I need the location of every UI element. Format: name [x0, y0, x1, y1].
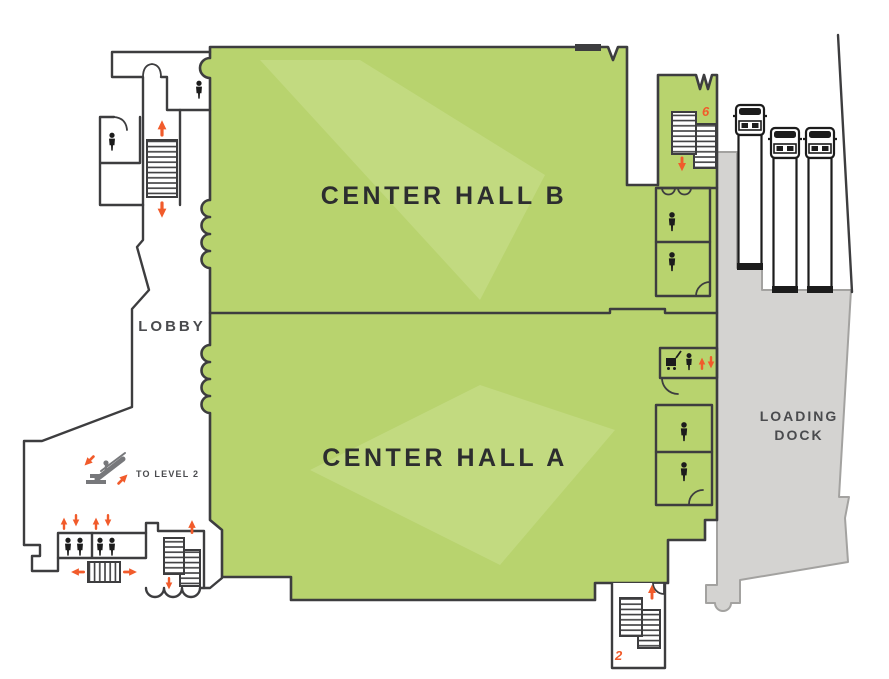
loading-dock-label-line1: LOADING: [760, 408, 839, 424]
left-arrow-icon: [71, 568, 84, 575]
elevator-person-icon: [77, 538, 83, 556]
truck-icon: [733, 105, 767, 270]
down-arrow-icon: [166, 578, 173, 589]
loading-dock-label-line2: DOCK: [774, 427, 823, 443]
elevator-person-icon: [97, 538, 103, 556]
door-arc: [114, 117, 127, 130]
up-arrow-icon: [158, 120, 167, 135]
stairs-icon: [164, 538, 184, 574]
up-arrow-icon: [93, 518, 100, 529]
restroom-icon: [109, 133, 115, 151]
stair-number: 2: [614, 648, 623, 663]
stair-number: 6: [702, 104, 710, 119]
down-arrow-icon: [105, 515, 112, 526]
door-marker: [575, 44, 601, 51]
stairs-icon: [694, 124, 716, 168]
truck-icon: [803, 128, 837, 293]
lobby-walls: [24, 205, 149, 545]
truck-icon: [768, 128, 802, 293]
stairs-icon: [620, 598, 642, 636]
lobby-area: LOBBY: [24, 205, 206, 545]
exhibit-halls: CENTER HALL B CENTER HALL A: [200, 44, 717, 600]
restroom-icon: [196, 81, 202, 99]
down-left-arrow-icon: [82, 454, 96, 468]
loading-dock-trucks: [733, 105, 837, 293]
lobby-label: LOBBY: [138, 318, 206, 335]
elevator-bank: [61, 515, 115, 555]
hall-b-label: CENTER HALL B: [321, 182, 567, 210]
southwest-block: [24, 515, 222, 597]
southeast-stairwell: 2: [612, 583, 665, 668]
stairs-icon: [672, 112, 696, 154]
door-arc: [143, 64, 161, 77]
right-arrow-icon: [124, 568, 137, 575]
down-arrow-icon: [73, 515, 80, 526]
property-line: [838, 35, 852, 292]
hall-a-label: CENTER HALL A: [322, 444, 568, 472]
elevator-person-icon: [109, 538, 115, 556]
northwest-block: [100, 52, 210, 218]
up-arrow-icon: [61, 518, 68, 529]
block-walls: [100, 117, 143, 205]
stairs-icon: [88, 562, 120, 582]
escalator-to-level-2: TO LEVEL 2: [82, 453, 199, 486]
to-level-2-label: TO LEVEL 2: [136, 469, 199, 479]
up-right-arrow-icon: [116, 472, 130, 486]
elevator-person-icon: [65, 538, 71, 556]
stairs-icon: [147, 140, 177, 197]
loading-dock-area: LOADING DOCK: [706, 35, 852, 611]
down-arrow-icon: [158, 203, 167, 218]
floor-plan: LOADING DOCK CENTER HALL B CENTER HALL A…: [0, 0, 889, 679]
